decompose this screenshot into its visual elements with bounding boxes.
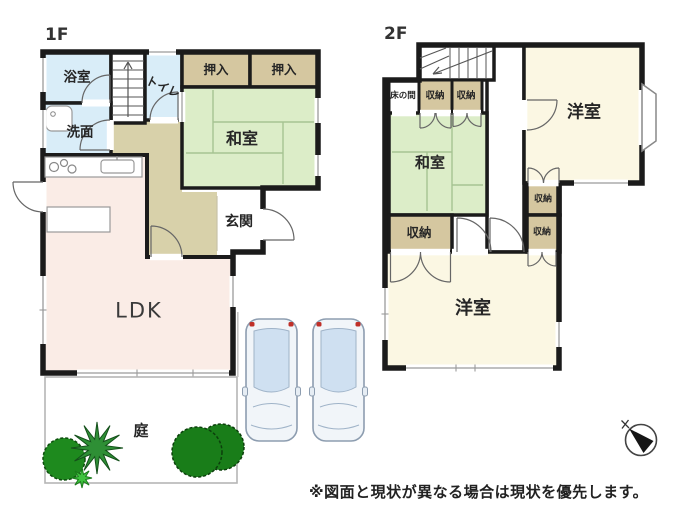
room-label-western-lower: 洋室 bbox=[455, 300, 491, 318]
compass-icon bbox=[622, 420, 657, 456]
room-label-tokonoma: 床の間 bbox=[390, 92, 416, 101]
stairs-2f bbox=[419, 45, 494, 80]
room-label-storage-left: 収納 bbox=[406, 227, 431, 240]
room-label-entrance: 玄関 bbox=[225, 215, 253, 229]
room-label-closet-left: 押入 bbox=[203, 64, 228, 77]
parking-cars bbox=[243, 319, 368, 441]
room-label-storage-right-upper: 収納 bbox=[534, 196, 552, 205]
small-bush-icon bbox=[72, 468, 92, 488]
room-label-storage-top-left: 収納 bbox=[425, 91, 444, 101]
room-label-storage-right-lower: 収納 bbox=[533, 229, 551, 238]
kitchen-island bbox=[47, 207, 110, 232]
room-label-western-upper: 洋室 bbox=[567, 105, 601, 122]
room-label-storage-top-right: 収納 bbox=[456, 91, 475, 101]
room-label-closet-right: 押入 bbox=[271, 64, 296, 77]
room-label-washitsu-2f: 和室 bbox=[415, 156, 445, 171]
room-label-garden: 庭 bbox=[133, 424, 148, 439]
floor-label-2f: 2F bbox=[384, 26, 407, 43]
tree-icon bbox=[172, 427, 222, 477]
car-icon bbox=[243, 319, 301, 441]
room-label-bathroom: 浴室 bbox=[64, 71, 91, 85]
room-label-ldk: LDK bbox=[115, 301, 163, 322]
floor-plan-image: 1F 浴室 洗面 トイレ 押入 押入 和室 玄関 LDK 庭 2F 床の間 収納… bbox=[0, 0, 683, 524]
floor-label-1f: 1F bbox=[45, 27, 68, 44]
floor-plan-drawing bbox=[0, 0, 683, 524]
disclaimer-note: ※図面と現状が異なる場合は現状を優先します。 bbox=[309, 483, 648, 501]
floor-2f-plan bbox=[382, 45, 657, 372]
bay-window bbox=[639, 84, 657, 151]
room-label-washroom: 洗面 bbox=[67, 126, 94, 140]
room-label-washitsu-1f: 和室 bbox=[226, 131, 258, 147]
car-icon bbox=[310, 319, 368, 441]
